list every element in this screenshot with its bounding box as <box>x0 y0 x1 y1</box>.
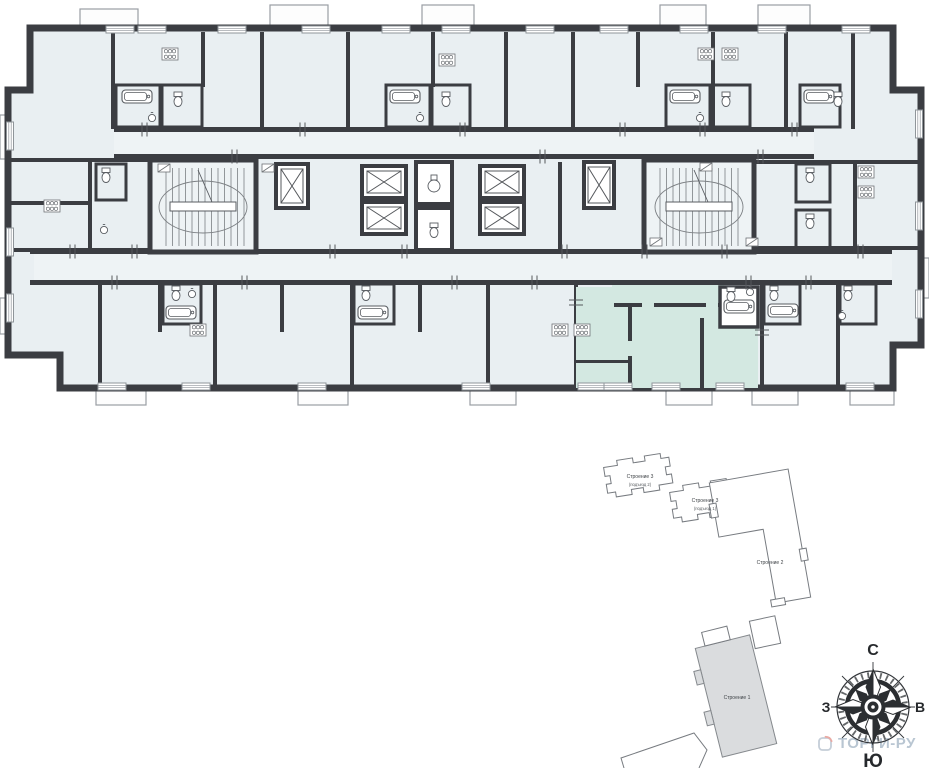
site-plan <box>603 452 815 768</box>
logo-text: ТОРГИ-РУ <box>838 735 916 752</box>
building-outline-annex <box>621 733 707 768</box>
compass-points <box>835 669 911 745</box>
service-rooms <box>416 162 452 250</box>
site-plan-labels: Строение 3 (подъезд 2) Строение 3 (подъе… <box>627 474 784 701</box>
logo-house-icon <box>817 735 834 752</box>
stairwell-left <box>150 160 256 252</box>
apartment-bathroom <box>720 287 758 328</box>
building-label: Строение 2 <box>757 560 784 566</box>
building-label: Строение 1 <box>724 695 751 701</box>
compass-letter-west: З <box>822 699 831 715</box>
building-outline-stroenie2-tip <box>749 616 780 649</box>
compass-letter-north: С <box>867 642 879 659</box>
building-outline-stroenie3-p2 <box>603 452 674 498</box>
apartment-stove <box>574 324 590 336</box>
logo: ТОРГИ-РУ <box>817 735 916 752</box>
building-outline-stroenie1 <box>685 621 777 758</box>
floor-plan <box>0 0 929 420</box>
building-outline-stroenie2 <box>705 468 815 614</box>
building-outline-stroenie3-p1 <box>669 477 740 523</box>
compass-letter-south: Ю <box>863 751 883 768</box>
building-label: Строение 3 <box>692 498 719 504</box>
building-label: Строение 3 <box>627 474 654 480</box>
compass-letter-east: В <box>915 699 925 715</box>
building-sublabel: (подъезд 2) <box>629 482 652 487</box>
highlighted-apartment[interactable] <box>574 285 758 388</box>
floorplan-page: ТОРГИ-РУ <box>0 0 929 768</box>
building-sublabel: (подъезд 1) <box>694 506 717 511</box>
